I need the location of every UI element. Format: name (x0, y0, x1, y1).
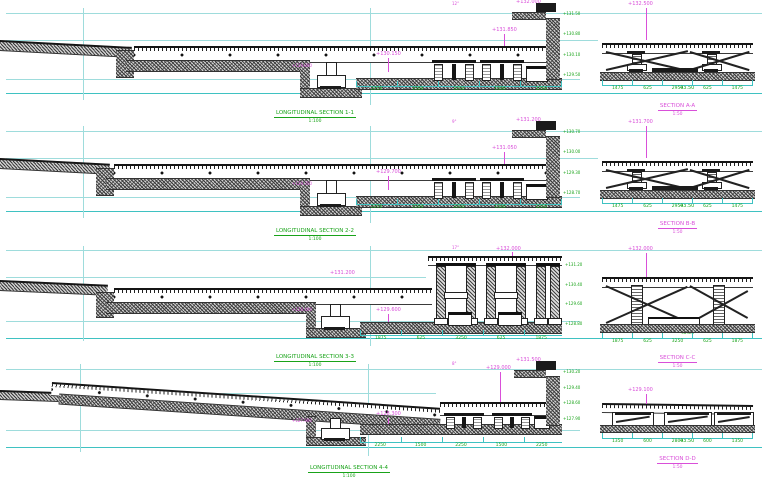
dim-label: 625 (703, 86, 712, 91)
support-bent (480, 60, 524, 81)
approach-ramp (0, 40, 132, 58)
support-bench (498, 312, 522, 326)
leader-line (504, 34, 505, 46)
pit-floor (300, 206, 362, 216)
elevation-label: +131.700 (628, 120, 653, 126)
sloped-deck-group (51, 382, 442, 430)
leader-line (646, 126, 647, 158)
dim-label: 2950 (672, 204, 683, 209)
dim-label: 2250 (374, 443, 385, 448)
dim-labels: 187562532506251875 (360, 336, 562, 341)
support-plate (667, 413, 709, 415)
dim-label: 2250 (453, 205, 464, 210)
leader-line (512, 252, 513, 256)
bent-post (510, 417, 514, 428)
side-elevation-labels: +131.50+130.80+130.10+129.50 (563, 11, 589, 77)
dim-label: 1875 (375, 336, 386, 341)
dim-label: +130.40 (565, 282, 591, 287)
section-row-1: +132.000 +131.850 +130.150 +129.800 12° … (0, 0, 768, 115)
grid-line-h (6, 13, 762, 14)
dim-label: +128.60 (563, 400, 589, 405)
dim-label: +129.30 (563, 170, 589, 175)
dim-label: +127.90 (563, 416, 589, 421)
dim-labels: 147562529506251475 (602, 86, 753, 91)
dim-label: 1875 (535, 336, 546, 341)
cross-section-caption: SECTION B-B 1:50 (640, 210, 715, 235)
dim-labels: 22501500225015002250 (356, 205, 562, 210)
low-support (714, 412, 754, 426)
dim-label: 625 (417, 336, 426, 341)
dim-label: 2800 (672, 439, 683, 444)
angle-label: 12° (452, 2, 459, 6)
pit-floor (300, 88, 362, 98)
roof-slab (514, 370, 546, 378)
cross-section-deck (602, 277, 753, 288)
dim-label: 2250 (536, 205, 547, 210)
roof-slab (512, 12, 546, 20)
elevation-label: +131.050 (492, 146, 517, 152)
dim-label: +131.50 (563, 11, 589, 16)
dim-label: 1475 (732, 204, 743, 209)
dim-label: 1875 (612, 339, 623, 344)
cross-section-caption: SECTION D-D 1:50 (640, 445, 715, 470)
frame-pad (534, 318, 548, 325)
dim-label: 2250 (453, 87, 464, 92)
bent-post (452, 182, 456, 198)
dim-label: +130.10 (563, 52, 589, 57)
approach-ramp (0, 158, 110, 175)
dim-label: +130.00 (563, 149, 589, 154)
dim-label: +128.80 (565, 321, 591, 326)
end-wall (546, 376, 560, 426)
leader-line (646, 8, 647, 40)
dim-label: 1350 (612, 439, 623, 444)
elevation-label: +132.500 (628, 2, 653, 8)
dim-label: 1350 (732, 439, 743, 444)
support-bent (432, 60, 476, 81)
leader-line (388, 418, 389, 424)
dim-label: 2250 (455, 443, 466, 448)
cross-section-caption: SECTION A-A 1:50 (640, 92, 715, 117)
elevation-label: +132.000 (628, 247, 653, 253)
dim-labels: 22501500225015002250 (360, 443, 562, 448)
frame-pad (548, 318, 562, 325)
support-bent (480, 178, 524, 199)
elevation-label: +131.200 (330, 271, 355, 277)
dim-labels: 22501500225015002250 (356, 87, 562, 92)
dim-label: 2250 (536, 87, 547, 92)
elevation-label: +132.000 (496, 247, 521, 253)
caption-scale: 1:100 (284, 474, 414, 479)
end-wall (546, 136, 560, 198)
elevation-label: +128.300 (376, 412, 401, 418)
dim-label: 1500 (415, 443, 426, 448)
dim-label: 1475 (612, 86, 623, 91)
leader-line (646, 253, 647, 277)
caption-scale: 1:50 (640, 112, 715, 117)
grid-line-h (6, 277, 426, 278)
dim-label: 1475 (732, 86, 743, 91)
roof-slab (512, 130, 546, 138)
dim-label: 600 (643, 439, 652, 444)
side-elevation-labels: +130.20+129.40+128.60+127.90 (563, 369, 589, 421)
dim-label: +128.70 (563, 190, 589, 195)
grid-line-h (6, 158, 598, 159)
dim-label: 1500 (412, 205, 423, 210)
dim-label: +129.40 (563, 385, 589, 390)
elevation-label: +129.350 (292, 182, 312, 186)
section-row-4: +131.500 +129.000 +128.300 +127.900 8° +… (0, 355, 768, 467)
cross-section-ground (600, 425, 755, 433)
caption-scale: 1:50 (640, 465, 715, 470)
support-bent (492, 413, 532, 429)
section-row-3: +132.000 +131.200 +129.600 +128.400 17° … (0, 235, 768, 355)
elevation-label: +128.400 (292, 308, 312, 312)
elevation-label: +131.200 (516, 118, 541, 124)
caption-title: LONGITUDINAL SECTION 1-1 (274, 110, 356, 118)
elevation-label: +129.100 (628, 388, 653, 394)
grid-line-v (80, 364, 81, 452)
dim-label: +129.60 (565, 301, 591, 306)
leader-line (388, 176, 389, 190)
dim-label: 1875 (732, 339, 743, 344)
collapsed-brace (718, 416, 750, 423)
dim-label: 625 (643, 86, 652, 91)
elevation-label: +129.700 (376, 170, 401, 176)
elevation-label: +131.850 (492, 28, 517, 34)
dim-label: 625 (497, 336, 506, 341)
side-elevation-labels: +130.70+130.00+129.30+128.70 (563, 129, 589, 195)
support-plate (717, 413, 751, 415)
dim-label: 1500 (494, 87, 505, 92)
pedestal-pad (324, 327, 345, 330)
dim-label: 1500 (412, 87, 423, 92)
dim-label: +130.20 (563, 369, 589, 374)
end-wall (546, 18, 560, 80)
support-bent (432, 178, 476, 199)
dim-label: +129.50 (563, 72, 589, 77)
dim-label: 3250 (455, 336, 466, 341)
low-support (664, 412, 712, 426)
elevation-label: +129.800 (292, 64, 312, 68)
support-bench (526, 184, 548, 200)
ground-strip (106, 178, 306, 190)
elevation-label: +129.600 (376, 308, 401, 314)
dim-label: 625 (643, 204, 652, 209)
leader-line (504, 152, 505, 164)
portal-frame (536, 263, 560, 325)
dim-label: 1500 (494, 205, 505, 210)
dim-label: +130.70 (563, 129, 589, 134)
bent-post (462, 417, 466, 428)
cross-section-ground (600, 324, 755, 333)
bent-post (500, 182, 504, 198)
caption-title: SECTION A-A (658, 103, 697, 111)
elevation-label: +127.900 (292, 419, 312, 423)
dim-label: 2250 (371, 205, 382, 210)
support-bent (444, 413, 484, 429)
caption-title: SECTION B-B (658, 221, 697, 229)
elevation-label: +132.000 (516, 0, 541, 6)
dim-label: +130.80 (563, 31, 589, 36)
dim-label: 2250 (371, 87, 382, 92)
section-row-2: +131.200 +131.050 +129.700 +129.350 9° +… (0, 118, 768, 235)
grid-line-h (6, 131, 762, 132)
dim-label: 1475 (612, 204, 623, 209)
collapsed-brace (616, 416, 650, 423)
pedestal-pad (320, 204, 341, 207)
bent-post (452, 64, 456, 80)
bent-post (500, 64, 504, 80)
dim-label: 625 (703, 204, 712, 209)
support-bench (448, 312, 472, 326)
elevation-label: +129.000 (486, 366, 511, 372)
frame-column (550, 266, 560, 320)
dim-label: 600 (703, 439, 712, 444)
frame-beam (494, 292, 518, 299)
ground-strip (126, 60, 310, 72)
approach-ramp (0, 280, 108, 296)
leader-line (500, 372, 501, 402)
angle-label: 17° (452, 246, 459, 250)
leader-line (388, 314, 389, 322)
pedestal-pad (324, 438, 345, 441)
dim-label: 1500 (496, 443, 507, 448)
support-bench (526, 66, 548, 82)
caption-title: LONGITUDINAL SECTION 4-4 (308, 465, 390, 473)
low-support (612, 412, 654, 426)
caption-title: SECTION D-D (657, 456, 697, 464)
leader-line (646, 394, 647, 404)
grid-line-h (6, 369, 762, 370)
frame-pad (484, 318, 498, 325)
grid-line-h (6, 40, 598, 41)
ground-strip (106, 302, 306, 314)
angle-label: 8° (452, 362, 457, 366)
frame-pad (434, 318, 448, 325)
elevation-label: +131.500 (516, 358, 541, 364)
support-plate (615, 413, 651, 415)
collapsed-brace (668, 415, 708, 422)
frame-beam (444, 292, 468, 299)
leader-line (388, 58, 389, 72)
frame-column (536, 266, 546, 320)
side-elevation-labels: +131.20+130.40+129.60+128.80 (565, 262, 591, 326)
dim-labels: 135060028006001350 (602, 439, 753, 444)
elevation-label: +130.150 (376, 52, 401, 58)
pedestal-pad (320, 86, 341, 89)
angle-label: 9° (452, 120, 457, 124)
dim-label: +131.20 (565, 262, 591, 267)
dim-label: 2250 (536, 443, 547, 448)
dim-labels: 147562529506251475 (602, 204, 753, 209)
dim-label: 2950 (672, 86, 683, 91)
